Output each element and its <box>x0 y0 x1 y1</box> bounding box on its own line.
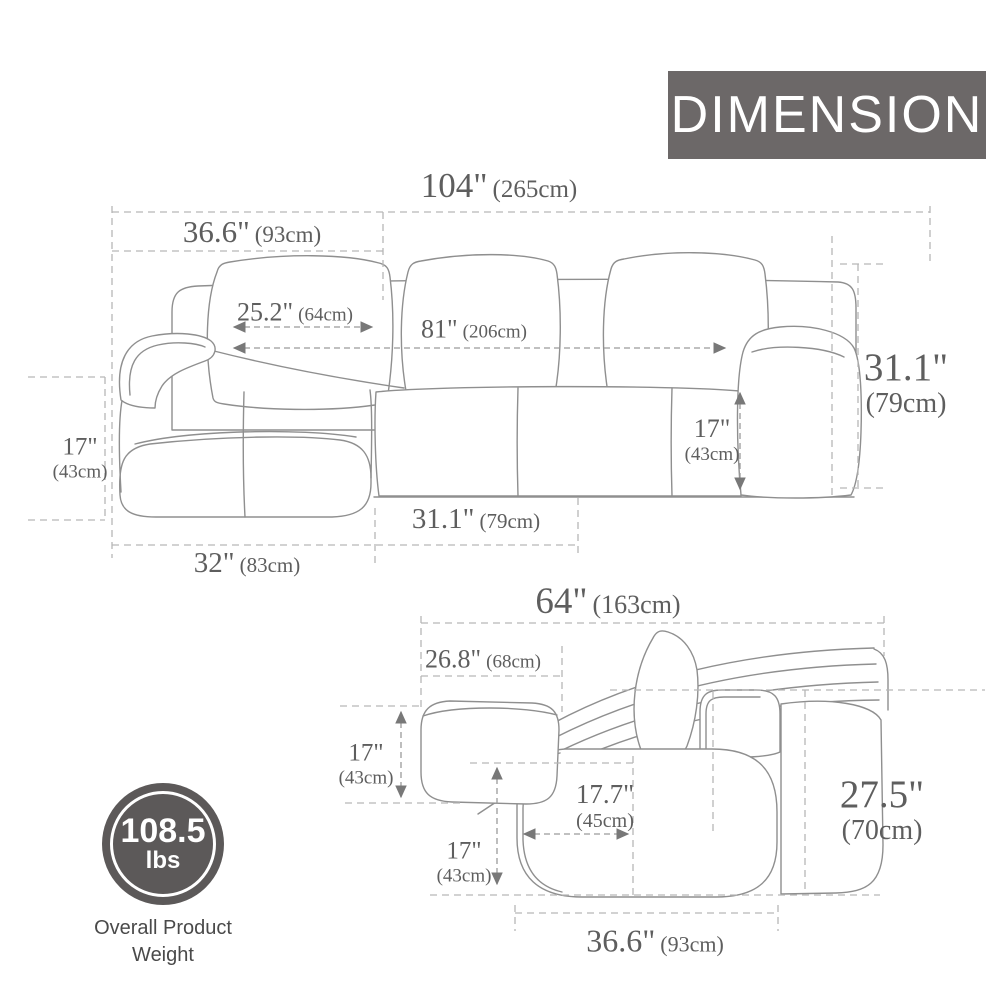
dimension-banner: DIMENSION <box>668 71 986 159</box>
dimension-inches: 17.7" <box>576 781 634 809</box>
dimension-cm: (45cm) <box>576 811 634 831</box>
weight-badge-circle: 108.5 lbs <box>102 783 224 905</box>
dimension-inches: 17" <box>62 435 97 461</box>
front-overall-width-label: 104" (265cm) <box>421 168 578 204</box>
front-view-drawing <box>119 253 861 517</box>
weight-caption: Overall Product Weight <box>43 915 283 969</box>
front-chaise-section-width-label: 36.6" (93cm) <box>183 216 321 248</box>
side-overall-height-label: 27.5" (70cm) <box>840 775 924 845</box>
dimension-sheet: DIMENSION 104" (265cm) 36.6" (93cm) 25.2… <box>0 0 1000 1000</box>
side-seat-depth-label: 17.7" (45cm) <box>576 781 634 831</box>
dimension-inches: 25.2" <box>237 300 293 327</box>
dimension-cm: (43cm) <box>437 866 492 885</box>
front-pillow-left <box>207 256 393 410</box>
front-arm-height-label: 17" (43cm) <box>53 435 108 482</box>
dimension-cm: (206cm) <box>463 323 527 342</box>
dimension-cm: (83cm) <box>240 555 301 576</box>
dimension-inches: 104" <box>421 168 488 204</box>
dimension-inches: 32" <box>194 549 235 579</box>
front-overall-height-label: 31.1" (79cm) <box>864 348 948 418</box>
dimension-inches: 26.8" <box>425 647 481 674</box>
dimension-inches: 36.6" <box>183 216 250 248</box>
front-chaise-seat-width-label: 25.2" (64cm) <box>237 300 353 327</box>
dimension-cm: (93cm) <box>255 223 321 246</box>
weight-caption-line-1: Overall Product <box>43 915 283 942</box>
side-base-depth-label: 36.6" (93cm) <box>586 925 724 958</box>
side-back-pillow <box>634 631 698 753</box>
dimension-cm: (93cm) <box>660 934 724 956</box>
front-chaise <box>120 437 371 517</box>
dimension-inches: 17" <box>694 416 731 443</box>
front-seat-height-label: 17" (43cm) <box>685 416 740 464</box>
dimension-inches: 17" <box>446 839 481 865</box>
dimension-cm: (43cm) <box>339 768 394 787</box>
dimension-cm: (43cm) <box>685 445 740 464</box>
dimension-cm: (163cm) <box>593 592 681 619</box>
side-overall-depth-label: 64" (163cm) <box>535 583 680 621</box>
side-chaise-extension-label: 26.8" (68cm) <box>425 647 541 674</box>
dimension-inches: 81" <box>421 317 458 344</box>
side-seat-height-label: 17" (43cm) <box>437 839 492 886</box>
side-ottoman <box>421 701 559 804</box>
front-seat-section-depth-label: 31.1" (79cm) <box>412 505 540 535</box>
dimension-inches: 31.1" <box>864 348 948 388</box>
dimension-cm: (43cm) <box>53 462 108 481</box>
dimension-inches: 17" <box>348 741 383 767</box>
dimension-cm: (79cm) <box>866 390 947 419</box>
dimension-cm: (79cm) <box>479 511 540 532</box>
dimension-cm: (68cm) <box>486 653 541 672</box>
dimension-inches: 36.6" <box>586 925 655 958</box>
side-armrest <box>700 690 780 757</box>
dimension-cm: (70cm) <box>842 817 923 846</box>
front-interior-width-label: 81" (206cm) <box>421 317 527 344</box>
weight-caption-line-2: Weight <box>43 942 283 969</box>
side-back-right-edge <box>874 649 888 710</box>
front-right-arm <box>737 326 861 498</box>
dimension-inches: 31.1" <box>412 505 475 535</box>
side-ottoman-height-label: 17" (43cm) <box>339 741 394 788</box>
dimension-cm: (265cm) <box>493 177 578 203</box>
dimension-inches: 27.5" <box>840 775 924 815</box>
dimension-cm: (64cm) <box>298 306 353 325</box>
dimension-banner-label: DIMENSION <box>671 85 984 145</box>
front-chaise-bottom-width-label: 32" (83cm) <box>194 549 301 579</box>
weight-badge: 108.5 lbs Overall Product Weight <box>43 783 283 969</box>
dimension-inches: 64" <box>535 583 587 621</box>
weight-badge-ring <box>110 791 216 897</box>
